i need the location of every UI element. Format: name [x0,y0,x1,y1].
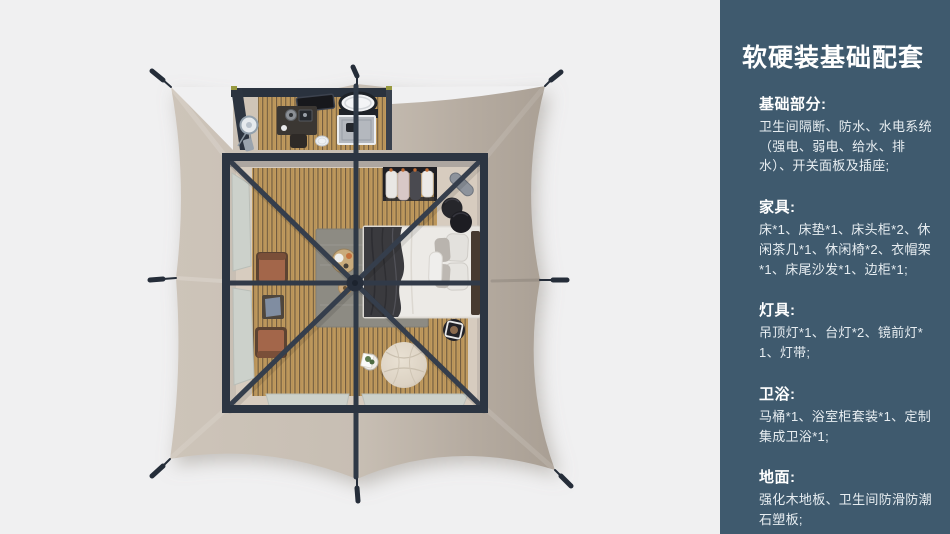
spec-sidebar: 软硬装基础配套 基础部分: 卫生间隔断、防水、水电系统（强电、弱电、给水、排水）… [720,0,950,534]
window-left-top [232,173,251,271]
spec-heading: 卫浴: [759,383,936,404]
spec-section-bathroom: 卫浴: 马桶*1、浴室柜套装*1、定制集成卫浴*1; [759,383,936,447]
sidebar-title: 软硬装基础配套 [742,44,936,73]
spec-body: 卫生间隔断、防水、水电系统（强电、弱电、给水、排水）、开关面板及插座; [759,117,936,176]
chair-top [256,252,288,283]
side-table [443,319,465,341]
tea-table [262,295,284,319]
spec-body: 吊顶灯*1、台灯*2、镜前灯*1、灯带; [759,323,936,363]
spec-section-furniture: 家具: 床*1、床垫*1、床头柜*2、休闲茶几*1、休闲椅*2、衣帽架*1、床尾… [759,196,936,279]
bathroom [231,86,392,152]
spec-section-basics: 基础部分: 卫生间隔断、防水、水电系统（强电、弱电、给水、排水）、开关面板及插座… [759,93,936,176]
bathroom-wall-right [386,88,392,150]
clothes-rack [383,167,437,201]
spec-heading: 灯具: [759,299,936,320]
page: 软硬装基础配套 基础部分: 卫生间隔断、防水、水电系统（强电、弱电、给水、排水）… [0,0,950,534]
tent-top-view [0,0,720,534]
spec-body: 床*1、床垫*1、床头柜*2、休闲茶几*1、休闲椅*2、衣帽架*1、床尾沙发*1… [759,220,936,279]
spec-section-lighting: 灯具: 吊顶灯*1、台灯*2、镜前灯*1、灯带; [759,299,936,363]
spec-body: 强化木地板、卫生间防滑防潮石塑板; [759,490,936,530]
stake-left [150,279,163,280]
spec-body: 马桶*1、浴室柜套装*1、定制集成卫浴*1; [759,407,936,447]
window-left-bottom [233,288,254,385]
floorplan-panel [0,0,720,534]
vanity-stool [290,134,307,148]
spec-heading: 家具: [759,196,936,217]
headboard [471,231,480,315]
spec-heading: 地面: [759,466,936,487]
spec-heading: 基础部分: [759,93,936,114]
toilet [316,136,329,146]
stake-bottom-middle [357,488,358,501]
spec-section-flooring: 地面: 强化木地板、卫生间防滑防潮石塑板; [759,466,936,530]
